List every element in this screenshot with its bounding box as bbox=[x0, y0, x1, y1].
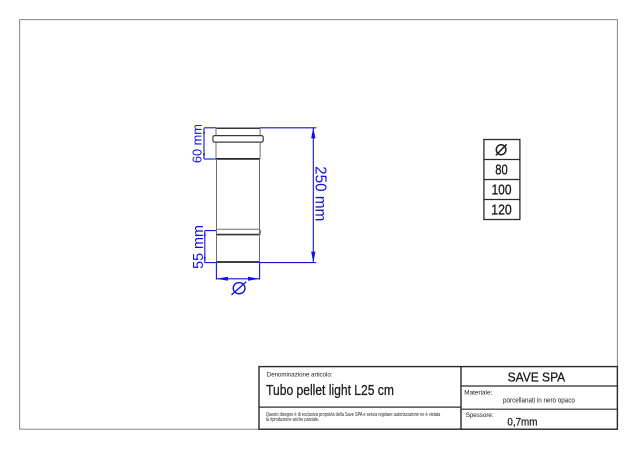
svg-text:Tubo pellet light L25 cm: Tubo pellet light L25 cm bbox=[266, 383, 394, 399]
svg-text:55 mm: 55 mm bbox=[191, 225, 207, 269]
svg-text:60 mm: 60 mm bbox=[190, 124, 205, 163]
svg-text:la riproduzione anche parziale: la riproduzione anche parziale. bbox=[266, 417, 319, 423]
svg-text:porcellanati in nero opaco: porcellanati in nero opaco bbox=[503, 397, 575, 404]
svg-text:80: 80 bbox=[495, 162, 508, 179]
svg-text:100: 100 bbox=[492, 182, 512, 199]
svg-text:SAVE SPA: SAVE SPA bbox=[508, 371, 566, 385]
svg-text:Spessore:: Spessore: bbox=[466, 412, 494, 419]
svg-text:120: 120 bbox=[491, 202, 512, 219]
svg-text:Materiale:: Materiale: bbox=[464, 389, 492, 396]
svg-text:250 mm: 250 mm bbox=[312, 166, 329, 221]
svg-text:Denominazione articolo:: Denominazione articolo: bbox=[267, 371, 333, 378]
svg-text:0,7mm: 0,7mm bbox=[507, 417, 537, 429]
